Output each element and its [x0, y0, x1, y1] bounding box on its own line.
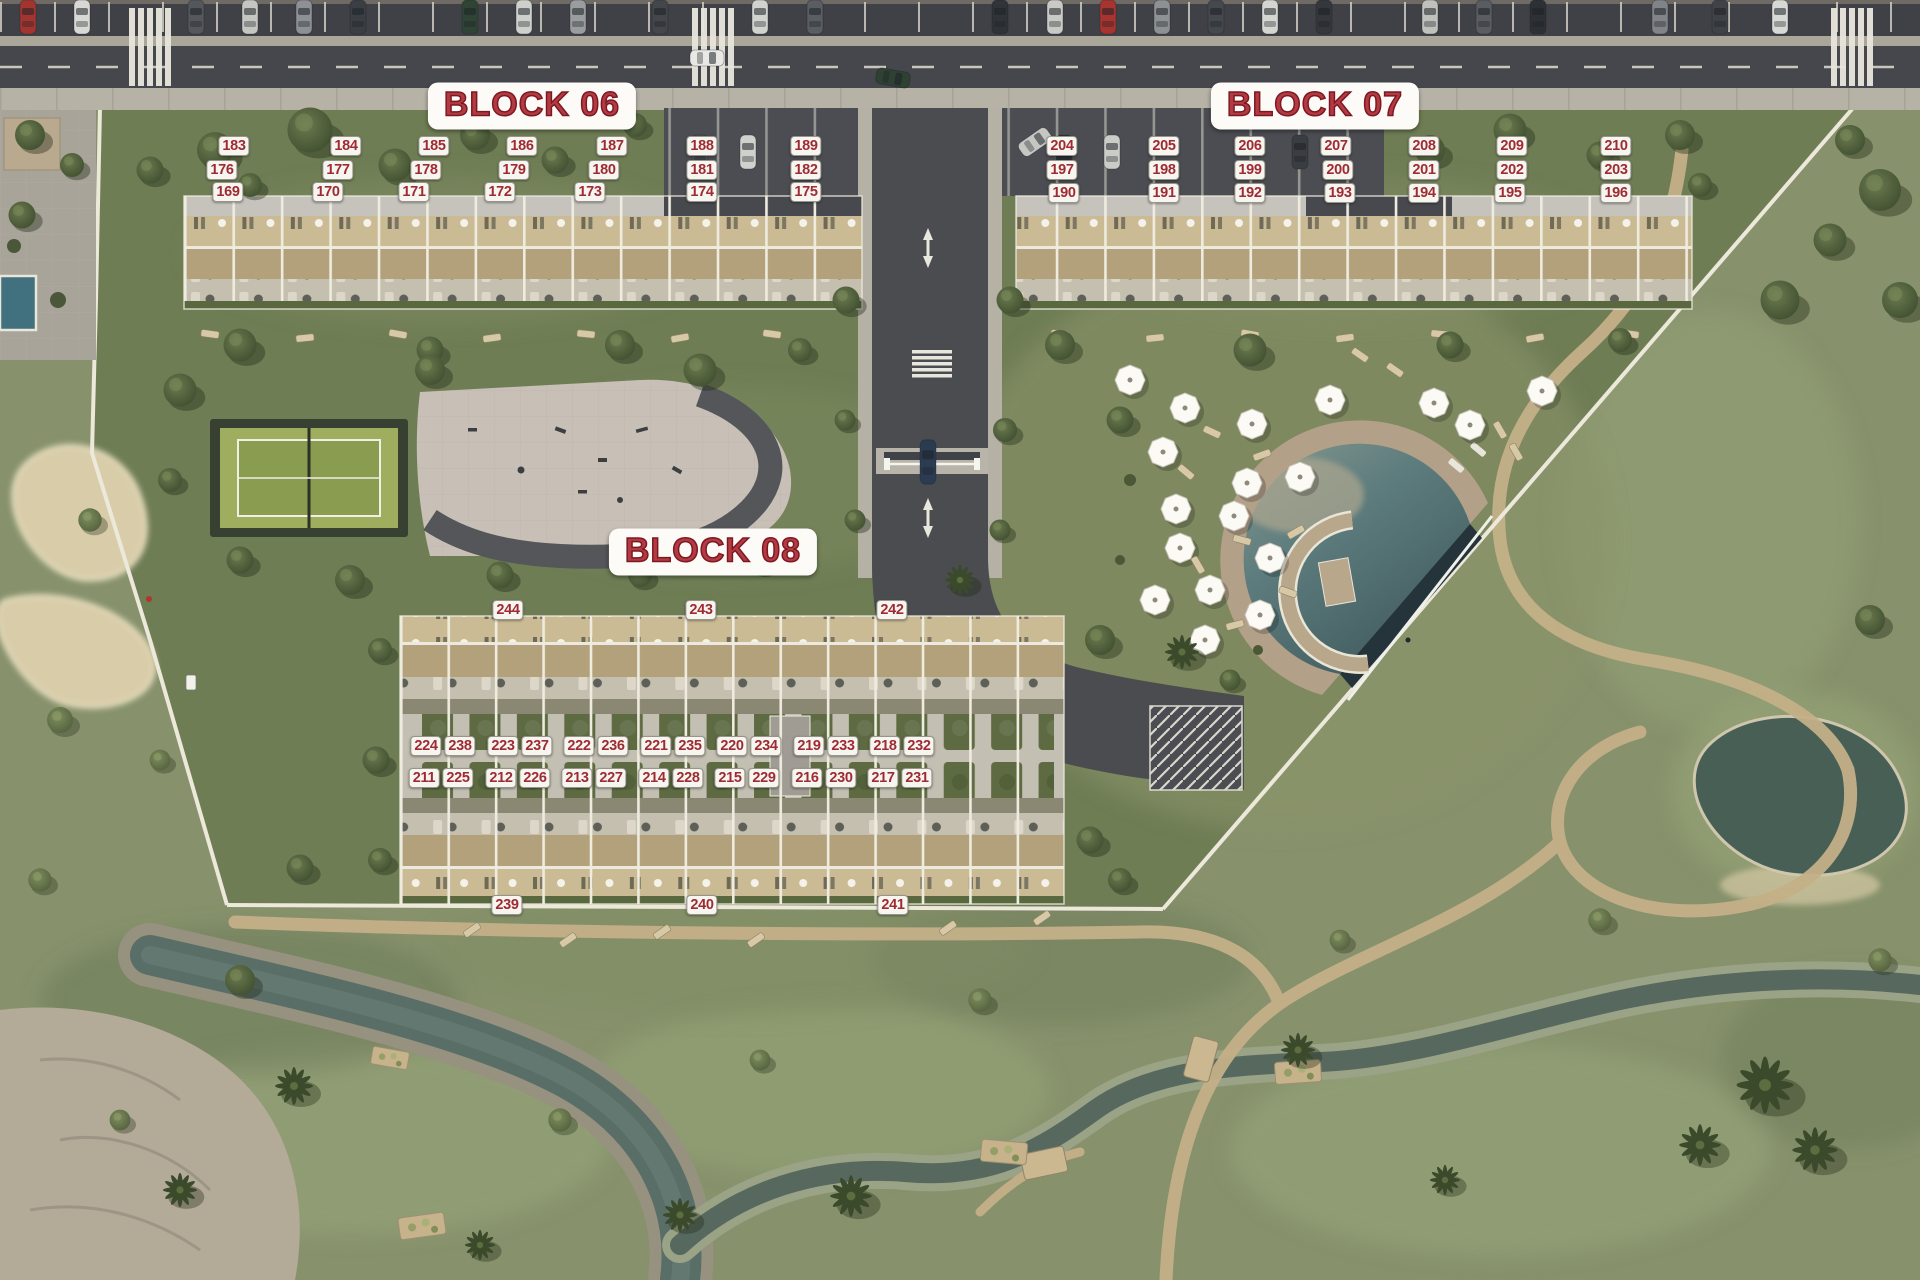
unit-label-232[interactable]: 232	[903, 736, 934, 756]
unit-label-224[interactable]: 224	[410, 736, 441, 756]
unit-label-175[interactable]: 175	[790, 182, 821, 202]
unit-label-193[interactable]: 193	[1324, 183, 1355, 203]
unit-label-223[interactable]: 223	[487, 736, 518, 756]
unit-label-233[interactable]: 233	[827, 736, 858, 756]
unit-label-187[interactable]: 187	[596, 136, 627, 156]
unit-label-240[interactable]: 240	[686, 895, 717, 915]
unit-label-206[interactable]: 206	[1234, 136, 1265, 156]
unit-label-179[interactable]: 179	[498, 160, 529, 180]
unit-label-172[interactable]: 172	[484, 182, 515, 202]
block-08-title[interactable]: BLOCK 08	[609, 529, 817, 576]
unit-label-208[interactable]: 208	[1408, 136, 1439, 156]
block-07-title[interactable]: BLOCK 07	[1211, 83, 1419, 130]
unit-label-234[interactable]: 234	[750, 736, 781, 756]
unit-label-239[interactable]: 239	[491, 895, 522, 915]
unit-label-182[interactable]: 182	[790, 160, 821, 180]
unit-label-229[interactable]: 229	[748, 768, 779, 788]
unit-label-218[interactable]: 218	[869, 736, 900, 756]
unit-label-212[interactable]: 212	[485, 768, 516, 788]
unit-label-230[interactable]: 230	[825, 768, 856, 788]
unit-label-202[interactable]: 202	[1496, 160, 1527, 180]
unit-label-170[interactable]: 170	[312, 182, 343, 202]
unit-label-237[interactable]: 237	[521, 736, 552, 756]
unit-label-185[interactable]: 185	[418, 136, 449, 156]
unit-label-227[interactable]: 227	[595, 768, 626, 788]
unit-label-216[interactable]: 216	[791, 768, 822, 788]
block-06-title[interactable]: BLOCK 06	[428, 83, 636, 130]
unit-label-190[interactable]: 190	[1048, 183, 1079, 203]
unit-label-203[interactable]: 203	[1600, 160, 1631, 180]
unit-labels-layer: 1831841851861871881891761771781791801811…	[0, 0, 1920, 1280]
unit-label-180[interactable]: 180	[588, 160, 619, 180]
unit-label-222[interactable]: 222	[563, 736, 594, 756]
unit-label-174[interactable]: 174	[686, 182, 717, 202]
unit-label-177[interactable]: 177	[322, 160, 353, 180]
unit-label-213[interactable]: 213	[561, 768, 592, 788]
unit-label-243[interactable]: 243	[685, 600, 716, 620]
unit-label-231[interactable]: 231	[901, 768, 932, 788]
unit-label-244[interactable]: 244	[492, 600, 523, 620]
unit-label-215[interactable]: 215	[714, 768, 745, 788]
unit-label-189[interactable]: 189	[790, 136, 821, 156]
unit-label-235[interactable]: 235	[674, 736, 705, 756]
unit-label-211[interactable]: 211	[409, 768, 440, 788]
unit-label-236[interactable]: 236	[597, 736, 628, 756]
unit-label-178[interactable]: 178	[410, 160, 441, 180]
unit-label-238[interactable]: 238	[444, 736, 475, 756]
unit-label-169[interactable]: 169	[212, 182, 243, 202]
unit-label-205[interactable]: 205	[1148, 136, 1179, 156]
unit-label-173[interactable]: 173	[574, 182, 605, 202]
unit-label-184[interactable]: 184	[330, 136, 361, 156]
unit-label-241[interactable]: 241	[877, 895, 908, 915]
unit-label-214[interactable]: 214	[638, 768, 669, 788]
unit-label-201[interactable]: 201	[1408, 160, 1439, 180]
unit-label-228[interactable]: 228	[672, 768, 703, 788]
unit-label-192[interactable]: 192	[1234, 183, 1265, 203]
unit-label-171[interactable]: 171	[398, 182, 429, 202]
unit-label-207[interactable]: 207	[1320, 136, 1351, 156]
unit-label-183[interactable]: 183	[218, 136, 249, 156]
unit-label-226[interactable]: 226	[519, 768, 550, 788]
unit-label-210[interactable]: 210	[1600, 136, 1631, 156]
unit-label-181[interactable]: 181	[686, 160, 717, 180]
unit-label-195[interactable]: 195	[1494, 183, 1525, 203]
unit-label-194[interactable]: 194	[1408, 183, 1439, 203]
unit-label-199[interactable]: 199	[1234, 160, 1265, 180]
unit-label-217[interactable]: 217	[867, 768, 898, 788]
unit-label-186[interactable]: 186	[506, 136, 537, 156]
unit-label-220[interactable]: 220	[716, 736, 747, 756]
unit-label-219[interactable]: 219	[793, 736, 824, 756]
unit-label-197[interactable]: 197	[1046, 160, 1077, 180]
unit-label-225[interactable]: 225	[442, 768, 473, 788]
unit-label-242[interactable]: 242	[876, 600, 907, 620]
unit-label-188[interactable]: 188	[686, 136, 717, 156]
unit-label-191[interactable]: 191	[1148, 183, 1179, 203]
unit-label-209[interactable]: 209	[1496, 136, 1527, 156]
unit-label-176[interactable]: 176	[206, 160, 237, 180]
unit-label-221[interactable]: 221	[640, 736, 671, 756]
unit-label-198[interactable]: 198	[1148, 160, 1179, 180]
masterplan-scene: 1831841851861871881891761771781791801811…	[0, 0, 1920, 1280]
unit-label-200[interactable]: 200	[1322, 160, 1353, 180]
unit-label-196[interactable]: 196	[1600, 183, 1631, 203]
unit-label-204[interactable]: 204	[1046, 136, 1077, 156]
